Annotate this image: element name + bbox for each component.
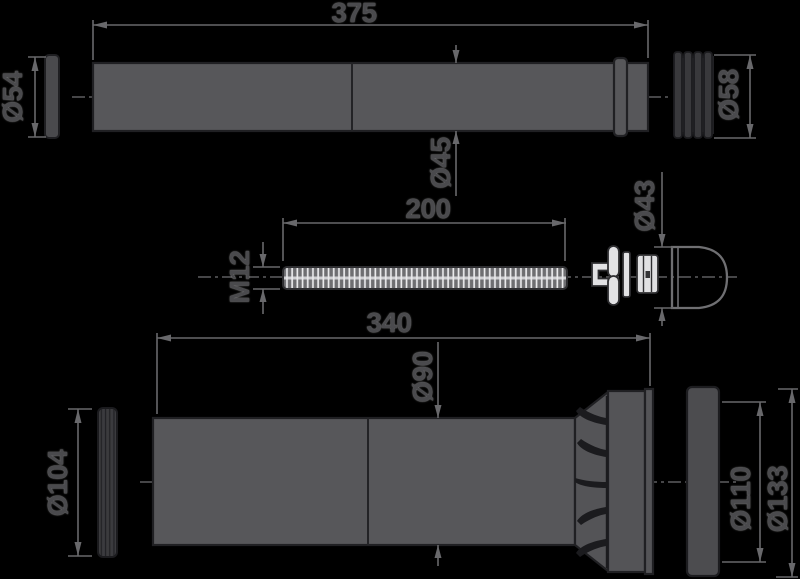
bottom-left-gasket bbox=[98, 408, 117, 557]
sleeve-fin bbox=[704, 52, 712, 138]
socket-rim bbox=[645, 389, 653, 574]
dim-label-top-length: 375 bbox=[331, 0, 376, 29]
top-left-gasket bbox=[45, 55, 59, 138]
washer bbox=[623, 252, 630, 297]
dim-label-top-pipe-diameter: Ø45 bbox=[425, 137, 457, 188]
dim-label-rod-thread: M12 bbox=[224, 251, 256, 304]
bottom-assembly bbox=[98, 387, 719, 576]
bottom-right-gasket bbox=[687, 387, 719, 576]
top-assembly bbox=[45, 52, 713, 138]
nut-center-mark bbox=[646, 271, 651, 278]
dim-label-top-left-gasket: Ø54 bbox=[0, 71, 29, 122]
sleeve-fin bbox=[674, 52, 682, 138]
dim-label-cone-diameter: Ø43 bbox=[629, 180, 661, 231]
dim-label-bottom-length: 340 bbox=[366, 307, 411, 339]
technical-drawing: 375 Ø54 Ø45 Ø58 200 M12 Ø43 340 Ø90 Ø104… bbox=[0, 0, 800, 579]
dim-label-bottom-left-gasket: Ø104 bbox=[42, 450, 74, 517]
dim-label-bottom-pipe-diameter: Ø90 bbox=[407, 351, 439, 402]
dim-340 bbox=[157, 333, 650, 414]
dim-label-rod-length: 200 bbox=[405, 193, 450, 225]
sleeve-fin bbox=[684, 52, 692, 138]
sleeve-fin bbox=[694, 52, 702, 138]
dim-label-socket-outer: Ø133 bbox=[762, 466, 794, 533]
ribbed-sleeve bbox=[674, 52, 713, 138]
wing-washer-lower bbox=[608, 276, 619, 305]
nut bbox=[637, 255, 658, 293]
dim-label-sleeve-diameter: Ø58 bbox=[713, 69, 745, 120]
wing-washer-upper bbox=[608, 246, 619, 277]
top-pipe-collar bbox=[614, 58, 627, 136]
top-pipe bbox=[93, 63, 648, 131]
dim-label-socket-inner: Ø110 bbox=[725, 467, 757, 532]
dim-54 bbox=[28, 57, 46, 137]
dim-m12 bbox=[253, 242, 280, 314]
socket-body bbox=[608, 391, 645, 572]
threaded-rod bbox=[283, 267, 567, 289]
bottom-pipe bbox=[153, 418, 575, 545]
drawing-canvas bbox=[0, 0, 800, 579]
